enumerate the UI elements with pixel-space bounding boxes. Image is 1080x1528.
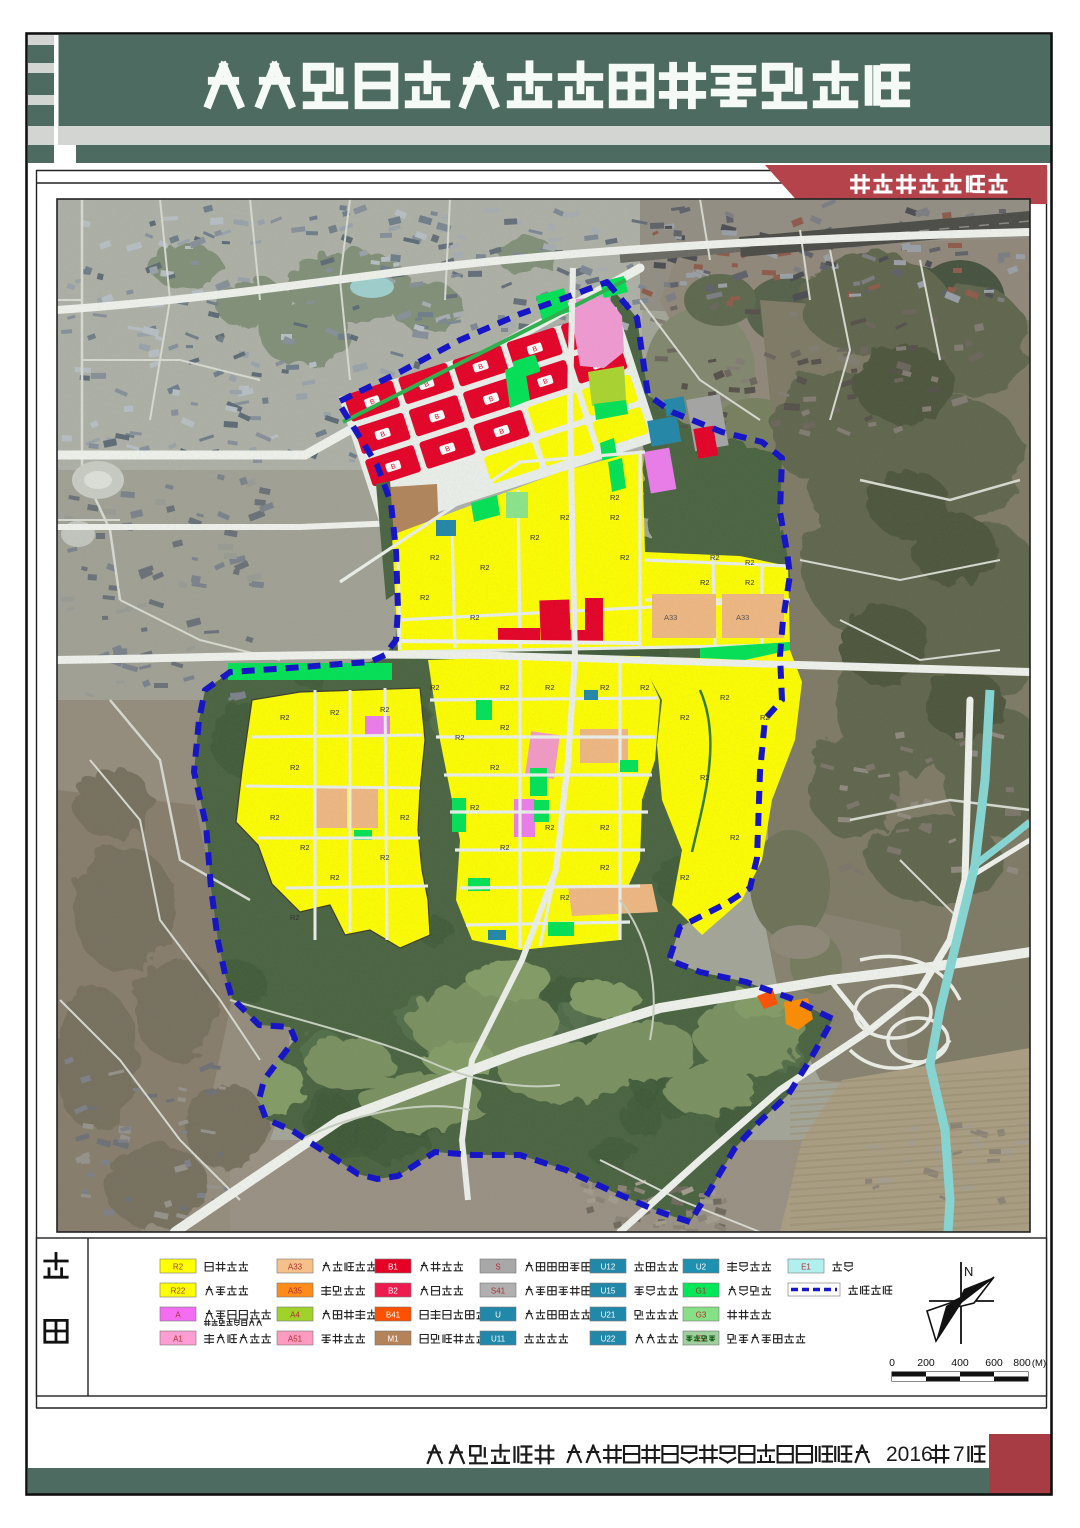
svg-text:200: 200 bbox=[917, 1357, 935, 1369]
svg-text:R2: R2 bbox=[380, 705, 390, 714]
svg-text:A1: A1 bbox=[173, 1335, 183, 1344]
svg-text:R2: R2 bbox=[400, 813, 410, 822]
svg-text:R2: R2 bbox=[745, 578, 755, 587]
svg-text:B1: B1 bbox=[388, 1263, 398, 1272]
svg-text:R2: R2 bbox=[545, 823, 555, 832]
svg-text:A4: A4 bbox=[290, 1311, 300, 1320]
svg-text:R2: R2 bbox=[500, 723, 510, 732]
svg-text:R2: R2 bbox=[720, 693, 730, 702]
svg-text:N: N bbox=[964, 1264, 973, 1279]
svg-text:B41: B41 bbox=[386, 1311, 401, 1320]
svg-text:7: 7 bbox=[953, 1443, 965, 1466]
svg-text:R2: R2 bbox=[455, 733, 465, 742]
svg-text:G1: G1 bbox=[696, 1287, 707, 1296]
svg-text:0: 0 bbox=[889, 1357, 895, 1369]
svg-text:R2: R2 bbox=[380, 853, 390, 862]
svg-text:R2: R2 bbox=[430, 683, 440, 692]
svg-text:R2: R2 bbox=[490, 763, 500, 772]
svg-text:R2: R2 bbox=[480, 563, 490, 572]
svg-text:R2: R2 bbox=[680, 713, 690, 722]
svg-text:R2: R2 bbox=[270, 813, 280, 822]
svg-text:R2: R2 bbox=[500, 683, 510, 692]
svg-text:S: S bbox=[495, 1263, 500, 1272]
svg-text:R2: R2 bbox=[730, 833, 740, 842]
svg-text:R2: R2 bbox=[745, 558, 755, 567]
svg-text:E1: E1 bbox=[801, 1263, 811, 1272]
svg-text:R2: R2 bbox=[545, 683, 555, 692]
svg-text:U11: U11 bbox=[491, 1335, 506, 1344]
svg-text:R2: R2 bbox=[760, 713, 770, 722]
svg-text:R2: R2 bbox=[330, 708, 340, 717]
svg-text:R2: R2 bbox=[560, 893, 570, 902]
svg-text:R2: R2 bbox=[620, 553, 630, 562]
svg-text:U: U bbox=[495, 1311, 501, 1320]
svg-text:2016: 2016 bbox=[886, 1443, 933, 1466]
svg-text:R2: R2 bbox=[173, 1263, 184, 1272]
svg-text:R2: R2 bbox=[600, 823, 610, 832]
svg-text:U21: U21 bbox=[601, 1311, 616, 1320]
svg-text:(M): (M) bbox=[1032, 1358, 1046, 1369]
svg-text:B2: B2 bbox=[388, 1287, 398, 1296]
svg-text:R2: R2 bbox=[710, 553, 720, 562]
svg-text:U22: U22 bbox=[601, 1335, 616, 1344]
svg-text:R2: R2 bbox=[530, 533, 540, 542]
svg-text:R2: R2 bbox=[700, 578, 710, 587]
svg-text:R2: R2 bbox=[290, 763, 300, 772]
svg-text:A: A bbox=[175, 1311, 181, 1320]
svg-text:A33: A33 bbox=[736, 613, 749, 622]
svg-text:A33: A33 bbox=[288, 1263, 303, 1272]
svg-text:R2: R2 bbox=[330, 873, 340, 882]
svg-text:R2: R2 bbox=[290, 913, 300, 922]
svg-text:G3: G3 bbox=[696, 1311, 707, 1320]
svg-text:R2: R2 bbox=[470, 803, 480, 812]
svg-text:R2: R2 bbox=[300, 843, 310, 852]
svg-text:R2: R2 bbox=[610, 513, 620, 522]
svg-text:R2: R2 bbox=[500, 843, 510, 852]
svg-text:U15: U15 bbox=[601, 1287, 616, 1296]
svg-text:S41: S41 bbox=[491, 1287, 506, 1296]
svg-text:R2: R2 bbox=[560, 513, 570, 522]
svg-text:400: 400 bbox=[951, 1357, 969, 1369]
svg-text:R2: R2 bbox=[680, 873, 690, 882]
svg-text:A33: A33 bbox=[664, 613, 677, 622]
svg-text:A35: A35 bbox=[288, 1287, 303, 1296]
svg-text:R22: R22 bbox=[171, 1287, 186, 1296]
svg-text:R2: R2 bbox=[280, 713, 290, 722]
svg-text:R2: R2 bbox=[470, 613, 480, 622]
svg-text:R2: R2 bbox=[700, 773, 710, 782]
svg-text:U12: U12 bbox=[601, 1263, 616, 1272]
svg-text:A51: A51 bbox=[288, 1335, 303, 1344]
svg-text:R2: R2 bbox=[600, 863, 610, 872]
svg-text:R2: R2 bbox=[610, 493, 620, 502]
svg-text:R2: R2 bbox=[430, 553, 440, 562]
svg-text:600: 600 bbox=[985, 1357, 1003, 1369]
svg-text:U2: U2 bbox=[696, 1263, 707, 1272]
svg-text:R2: R2 bbox=[600, 683, 610, 692]
svg-text:M1: M1 bbox=[387, 1335, 399, 1344]
svg-text:R2: R2 bbox=[640, 683, 650, 692]
svg-text:800: 800 bbox=[1013, 1357, 1031, 1369]
svg-text:R2: R2 bbox=[420, 593, 430, 602]
